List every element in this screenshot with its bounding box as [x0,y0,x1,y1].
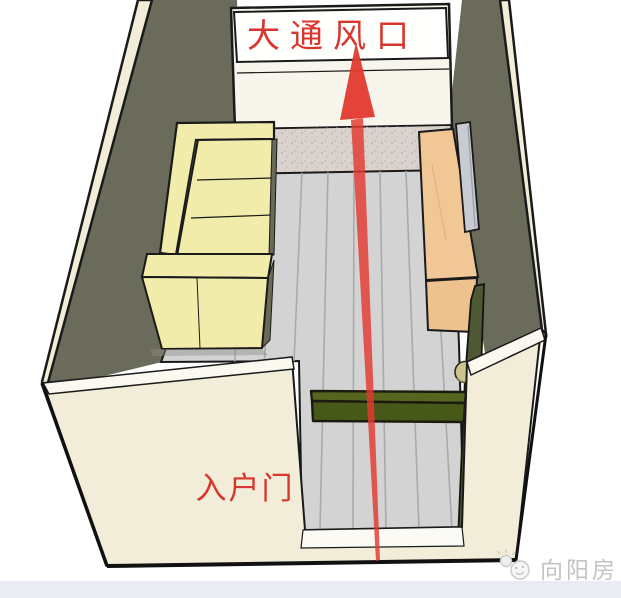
watermark-text: 向阳房 [540,557,618,583]
sofa-front-face [142,277,268,349]
green-bench [311,391,466,422]
room-ventilation-diagram: 大通风口 入户门 向阳房 [0,0,621,598]
green-bench-front [312,401,465,422]
side-cabinet [419,122,479,332]
footer-bar [0,581,621,598]
sofa-floor-shadow [150,349,268,356]
door-threshold [301,527,464,548]
entry-door-label: 入户门 [196,471,295,506]
sofa-front-seat-top [142,254,272,278]
room-3d-render: 大通风口 入户门 向阳房 [0,0,621,598]
vent-label: 大通风口 [247,18,419,55]
